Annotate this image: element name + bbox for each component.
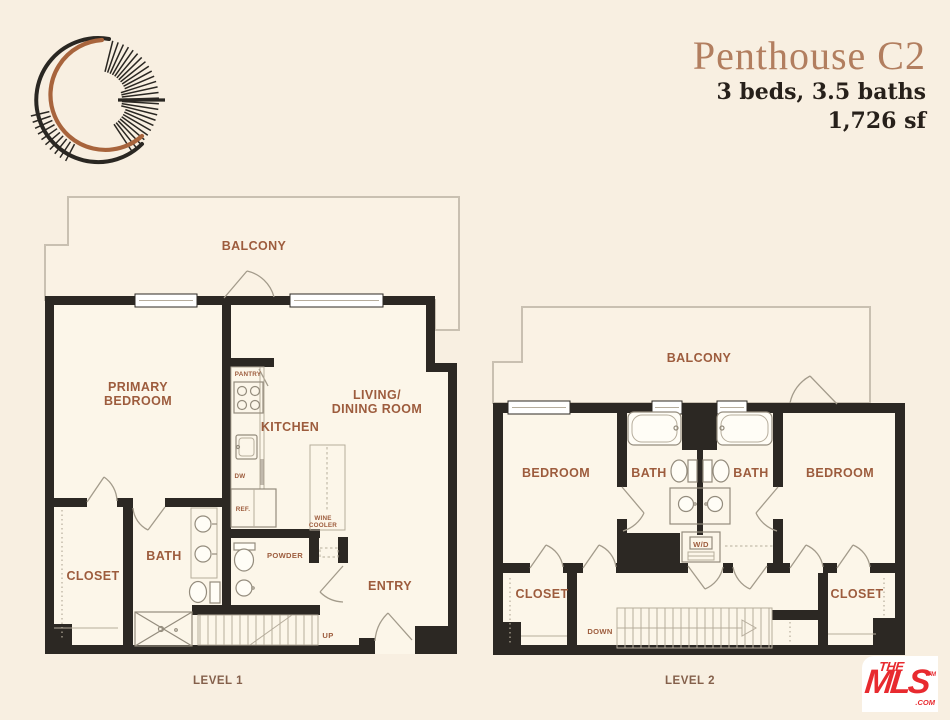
floorplan-page: Penthouse C2 3 beds, 3.5 baths 1,726 sf [0, 0, 950, 720]
crescent-moon-logo [16, 12, 186, 182]
level1-powder-label: POWDER [267, 551, 303, 560]
level2-bath-left-label: BATH [631, 466, 666, 480]
level2-wd-label: W/D [693, 540, 709, 549]
level1-kitchen-label: KITCHEN [261, 420, 319, 434]
level1-ref-label: REF. [236, 506, 250, 513]
level2-down-label: DOWN [587, 627, 612, 636]
level1-living-label-2: DINING ROOM [332, 402, 423, 416]
mls-logo: THE MLS .COM TM [862, 656, 938, 712]
mls-logo-com: .COM [915, 698, 935, 707]
level1-entry-label: ENTRY [368, 579, 412, 593]
mls-logo-word: MLS [863, 663, 930, 702]
page-title: Penthouse C2 [693, 34, 926, 78]
level1-wine-cooler-label-2: COOLER [309, 522, 337, 529]
level2-bedroom-right-label: BEDROOM [806, 466, 874, 480]
level1-living-label-1: LIVING/ [353, 388, 401, 402]
level2-closet-right-label: CLOSET [830, 587, 883, 601]
level1-primary-bedroom-label-1: PRIMARY [108, 380, 168, 394]
level1-primary-bedroom-label-2: BEDROOM [104, 394, 172, 408]
level1-up-label: UP [322, 631, 333, 640]
level1-floor [45, 300, 457, 654]
beds-baths-text: 3 beds, 3.5 baths [693, 78, 926, 107]
level2-balcony-label: BALCONY [667, 351, 732, 365]
mls-logo-tm: TM [927, 672, 936, 678]
level1-bath-label: BATH [146, 549, 181, 563]
level1-pantry-label: PANTRY [235, 371, 262, 378]
level2-floorplan: BALCONY BEDROOM BATH BATH BEDROOM W/D CL… [488, 300, 918, 662]
level2-bath-right-label: BATH [733, 466, 768, 480]
level1-dw-label: DW [235, 473, 246, 480]
level2-closet-left-label: CLOSET [515, 587, 568, 601]
header: Penthouse C2 3 beds, 3.5 baths 1,726 sf [693, 34, 926, 136]
level1-wine-cooler-label-1: WINE [314, 515, 331, 522]
level1-balcony-label: BALCONY [222, 239, 287, 253]
level2-bedroom-left-label: BEDROOM [522, 466, 590, 480]
level1-caption: LEVEL 1 [148, 675, 288, 687]
level1-floorplan: BALCONY PRIMARY BEDROOM LIVING/ DINING R… [38, 188, 468, 668]
level1-closet-label: CLOSET [66, 569, 119, 583]
level2-caption: LEVEL 2 [620, 675, 760, 687]
area-text: 1,726 sf [693, 107, 926, 136]
